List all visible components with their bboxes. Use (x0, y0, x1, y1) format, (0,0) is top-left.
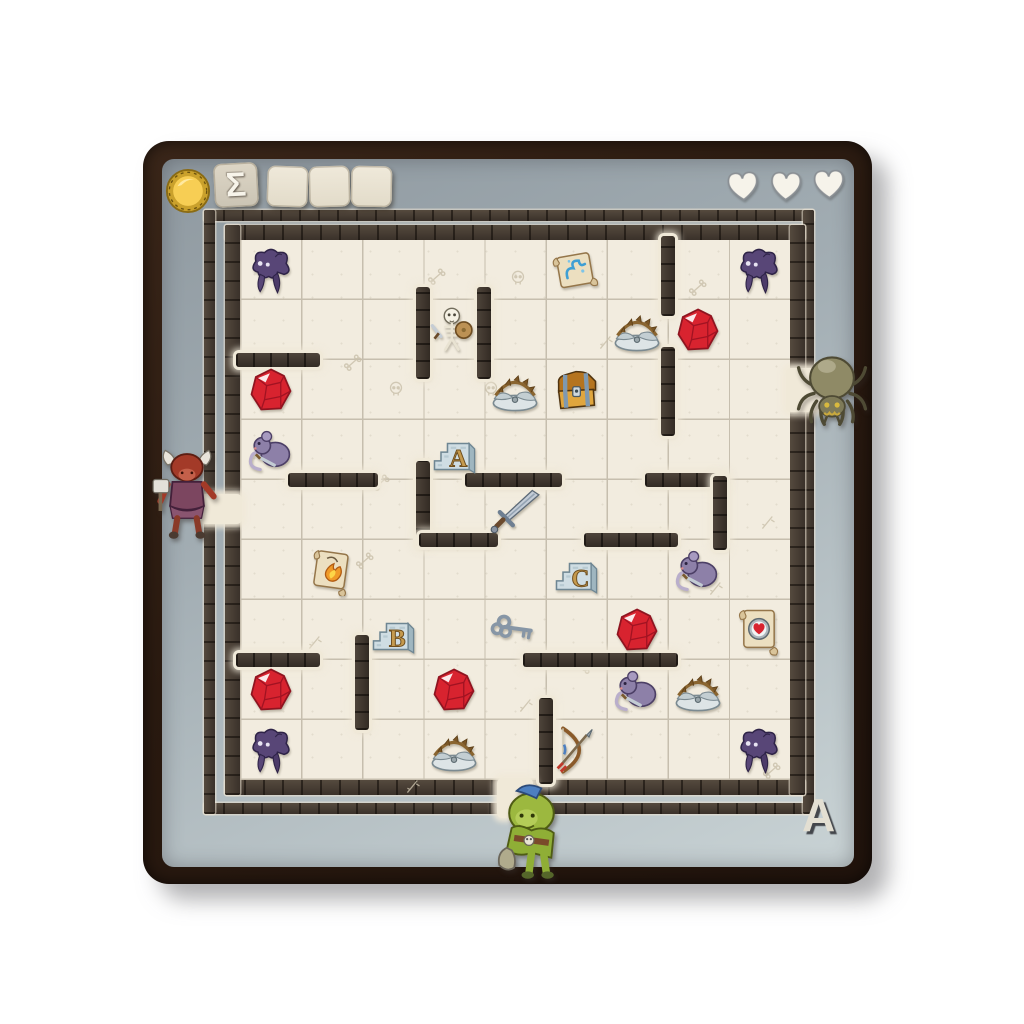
gem-item[interactable] (245, 364, 297, 416)
interior-wall (288, 473, 378, 487)
board-corner-letter: A (802, 792, 835, 838)
monocle-doodle (342, 352, 364, 374)
dagger-doodle (305, 631, 327, 653)
score-box-2[interactable] (308, 165, 350, 207)
rat-item[interactable] (672, 544, 724, 596)
spider-character[interactable] (796, 342, 868, 432)
lizard-doodle (758, 511, 780, 533)
bow-item[interactable] (550, 724, 602, 776)
heart-icon-1[interactable] (725, 170, 761, 204)
sigma-score-tile[interactable]: Σ (213, 162, 259, 208)
shadow-monster-item[interactable] (245, 244, 297, 296)
score-box-1[interactable] (266, 165, 308, 207)
gem-item[interactable] (245, 664, 297, 716)
shadow-monster-item[interactable] (733, 724, 785, 776)
sickle-doodle (403, 775, 425, 797)
scroll-fire-item[interactable] (306, 544, 358, 596)
bear-trap-item[interactable] (428, 724, 480, 776)
block-item-A[interactable]: A (428, 424, 480, 476)
dungeon-wall-right (790, 225, 805, 795)
game-board-scene: Σ A ACB (0, 0, 1024, 1024)
bear-trap-item[interactable] (489, 364, 541, 416)
gem-item[interactable] (672, 304, 724, 356)
block-item-B[interactable]: B (367, 604, 419, 656)
heart-icon-3[interactable] (811, 168, 846, 201)
score-box-row: Σ (214, 163, 414, 213)
svg-text:A: A (449, 445, 467, 472)
svg-text:B: B (389, 625, 406, 652)
svg-text:C: C (571, 565, 589, 592)
sword-item[interactable] (489, 484, 541, 536)
minotaur-character[interactable] (150, 448, 224, 540)
feather-doodle (516, 694, 538, 716)
shadow-monster-item[interactable] (245, 724, 297, 776)
scroll-heart-item[interactable] (733, 604, 785, 656)
treasure-chest-item[interactable] (550, 364, 602, 416)
fishbone-doodle (687, 277, 709, 299)
gem-item[interactable] (428, 664, 480, 716)
life-hearts-row (726, 170, 866, 210)
key-item[interactable] (489, 604, 541, 656)
interior-wall (419, 533, 497, 547)
gold-coin-icon (165, 168, 211, 214)
skeleton-item[interactable] (428, 304, 480, 356)
interior-wall (661, 347, 675, 436)
block-item-C[interactable]: C (550, 544, 602, 596)
interior-wall (713, 476, 727, 550)
bones-doodle (426, 266, 448, 288)
score-box-3[interactable] (351, 166, 393, 208)
bear-trap-item[interactable] (672, 664, 724, 716)
rat-item[interactable] (611, 664, 663, 716)
rat-item[interactable] (245, 424, 297, 476)
shadow-monster-item[interactable] (733, 244, 785, 296)
skull-doodle (507, 268, 529, 290)
bear-trap-item[interactable] (611, 304, 663, 356)
sigma-label: Σ (225, 165, 247, 205)
gem-item[interactable] (611, 604, 663, 656)
goblin-character[interactable] (488, 776, 570, 880)
dungeon-wall-top (225, 225, 805, 240)
skull-doodle (385, 379, 407, 401)
scroll-spell-item[interactable] (550, 244, 602, 296)
heart-icon-2[interactable] (768, 170, 803, 203)
